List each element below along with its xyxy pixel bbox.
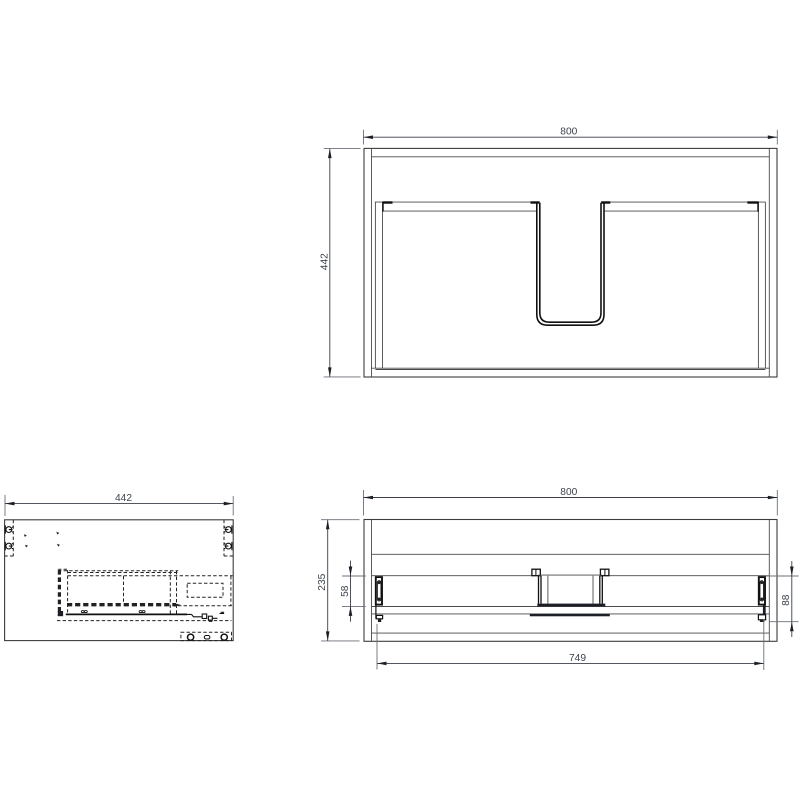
- svg-text:88: 88: [781, 594, 792, 606]
- svg-text:800: 800: [560, 127, 577, 138]
- svg-text:235: 235: [317, 573, 328, 590]
- svg-text:58: 58: [340, 585, 351, 597]
- svg-text:749: 749: [569, 653, 586, 664]
- svg-text:442: 442: [115, 493, 132, 504]
- svg-text:442: 442: [319, 253, 330, 270]
- svg-text:800: 800: [560, 487, 577, 498]
